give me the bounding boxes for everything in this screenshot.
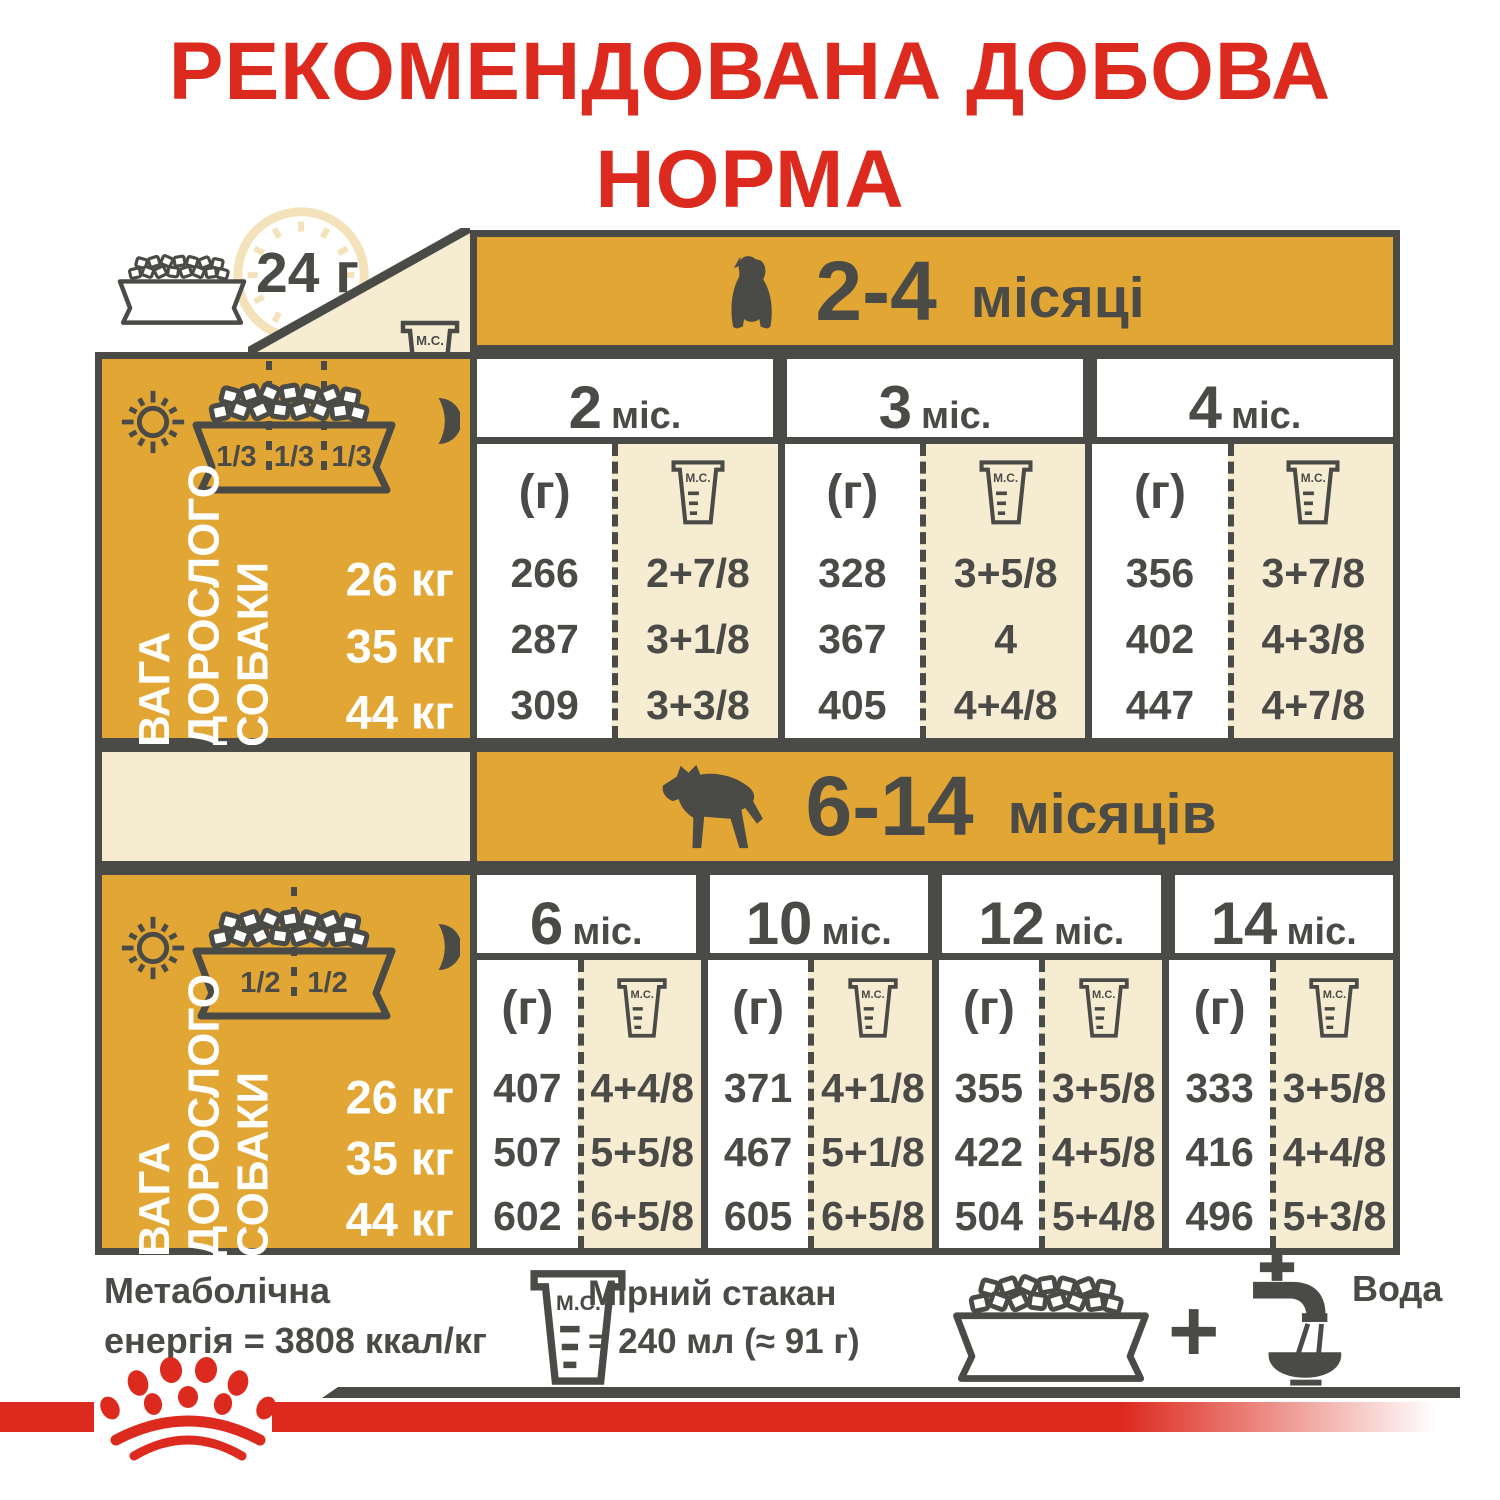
grams-value: 287 [477, 606, 612, 672]
weight-26: 26 кг [346, 552, 454, 607]
feeding-guide-page: РЕКОМЕНДОВАНА ДОБОВА НОРМА 24 г [0, 0, 1500, 1500]
grams-header: (г) [477, 444, 612, 540]
weight-44: 44 кг [346, 1192, 454, 1247]
grams-value: 507 [477, 1120, 578, 1184]
title-line-1: РЕКОМЕНДОВАНА ДОБОВА [0, 18, 1500, 126]
german-shepherd-icon [653, 762, 771, 852]
cups-value: 4+3/8 [1234, 606, 1393, 672]
grams-value: 328 [785, 540, 920, 606]
cups-value: 4+1/8 [814, 1056, 931, 1120]
cups-value: 6+5/8 [814, 1184, 931, 1248]
measuring-cup-icon: М.С. [615, 975, 669, 1041]
grams-header: (г) [477, 960, 578, 1056]
measuring-cup-icon: М.С. [846, 975, 900, 1041]
divider-line [322, 1387, 1460, 1398]
cups-value: 4+4/8 [1276, 1120, 1393, 1184]
month-header: 6 міс. [470, 868, 703, 960]
grams-value: 504 [939, 1184, 1040, 1248]
grams-value: 356 [1092, 540, 1227, 606]
grams-value: 367 [785, 606, 920, 672]
measuring-cup-icon: М.С. [1077, 975, 1131, 1041]
month-header: 14 міс. [1168, 868, 1401, 960]
cups-value: 4+5/8 [1045, 1120, 1162, 1184]
food-bowl-icon [935, 1256, 1167, 1391]
sidebar-6-14: 1/2 1/2 ВАГА ДОРОСЛОГО СОБАКИ 26 кг 35 к… [95, 868, 470, 1255]
grams-value: 496 [1169, 1184, 1270, 1248]
month-header: 12 міс. [935, 868, 1168, 960]
cups-value: 3+5/8 [1045, 1056, 1162, 1120]
month-header: 10 міс. [703, 868, 936, 960]
month-group: (г) 328 367 405 М.С. 3+5/8 4 4+4/8 [785, 444, 1093, 738]
cups-value: 3+5/8 [926, 540, 1085, 606]
section-range: 2-4 [815, 243, 936, 340]
weight-35: 35 кг [346, 619, 454, 674]
grams-value: 467 [708, 1120, 809, 1184]
section-range: 6-14 [805, 758, 973, 855]
weight-35: 35 кг [346, 1131, 454, 1186]
weight-44: 44 кг [346, 685, 454, 740]
cups-value: 4+4/8 [584, 1056, 701, 1120]
section-word: місяців [1008, 781, 1217, 847]
grams-value: 602 [477, 1184, 578, 1248]
water-tap-icon [1212, 1252, 1344, 1390]
cups-value: 4 [926, 606, 1085, 672]
divider-block [95, 745, 470, 868]
adult-weight-label: ВАГА ДОРОСЛОГО СОБАКИ [130, 987, 278, 1257]
month-group: (г) 266 287 309 М.С. 2+7/8 3+1/8 3+3/8 [477, 444, 785, 738]
cups-value: 5+4/8 [1045, 1184, 1162, 1248]
grams-value: 407 [477, 1056, 578, 1120]
cups-value: 6+5/8 [584, 1184, 701, 1248]
ration-table-6-14: (г) 407 507 602 М.С. 4+4/8 5+5/8 6+5/8 (… [470, 953, 1400, 1255]
grams-value: 266 [477, 540, 612, 606]
water-label: Вода [1352, 1268, 1442, 1310]
month-header-row-1: 2 міс. 3 міс. 4 міс. [470, 352, 1400, 444]
measuring-cup-icon: М.С. [1284, 457, 1342, 528]
month-header-row-2: 6 міс. 10 міс. 12 міс. 14 міс. [470, 868, 1400, 960]
grams-header: (г) [708, 960, 809, 1056]
ration-table-2-4: (г) 266 287 309 М.С. 2+7/8 3+1/8 3+3/8 (… [470, 437, 1400, 745]
cups-value: 3+3/8 [618, 672, 777, 738]
measuring-cup-note: Мірний стакан = 240 мл (≈ 91 г) [588, 1270, 860, 1367]
measuring-cup-icon: М.С. [977, 457, 1035, 528]
moon-icon [414, 919, 460, 975]
month-header: 3 міс. [780, 352, 1090, 444]
cups-value: 5+1/8 [814, 1120, 931, 1184]
month-header: 2 міс. [470, 352, 780, 444]
cups-value: 5+5/8 [584, 1120, 701, 1184]
cups-value: 3+5/8 [1276, 1056, 1393, 1120]
adult-weight-label: ВАГА ДОРОСЛОГО СОБАКИ [130, 463, 278, 747]
cups-value: 2+7/8 [618, 540, 777, 606]
royal-canin-crown-logo [86, 1356, 291, 1481]
grams-value: 416 [1169, 1120, 1270, 1184]
grams-value: 333 [1169, 1056, 1270, 1120]
measuring-cup-icon: М.С. [1307, 975, 1361, 1041]
month-group: (г) 407 507 602 М.С. 4+4/8 5+5/8 6+5/8 [477, 960, 708, 1248]
cups-value: 3+7/8 [1234, 540, 1393, 606]
cups-value: 4+7/8 [1234, 672, 1393, 738]
grams-value: 371 [708, 1056, 809, 1120]
sidebar-2-4: 1/3 1/3 1/3 ВАГА ДОРОСЛОГО СОБАКИ 26 кг … [95, 352, 470, 745]
section-2-4-header: 2-4 місяці [470, 230, 1400, 352]
grams-value: 402 [1092, 606, 1227, 672]
grams-header: (г) [1169, 960, 1270, 1056]
month-header: 4 міс. [1090, 352, 1400, 444]
grams-header: (г) [1092, 444, 1227, 540]
month-group: (г) 371 467 605 М.С. 4+1/8 5+1/8 6+5/8 [708, 960, 939, 1248]
month-group: (г) 355 422 504 М.С. 3+5/8 4+5/8 5+4/8 [939, 960, 1170, 1248]
cups-value: 4+4/8 [926, 672, 1085, 738]
cups-value: 3+1/8 [618, 606, 777, 672]
month-group: (г) 356 402 447 М.С. 3+7/8 4+3/8 4+7/8 [1092, 444, 1393, 738]
measuring-cup-icon: М.С. [669, 457, 727, 528]
food-bowl-icon [106, 242, 258, 331]
grams-value: 405 [785, 672, 920, 738]
moon-icon [414, 393, 460, 449]
grams-value: 309 [477, 672, 612, 738]
cups-value: 5+3/8 [1276, 1184, 1393, 1248]
grams-value: 355 [939, 1056, 1040, 1120]
grams-header: (г) [785, 444, 920, 540]
weight-26: 26 кг [346, 1070, 454, 1125]
grams-value: 422 [939, 1120, 1040, 1184]
metabolic-energy-note: Метаболічна енергія = 3808 ккал/кг [104, 1266, 487, 1365]
month-group: (г) 333 416 496 М.С. 3+5/8 4+4/8 5+3/8 [1169, 960, 1393, 1248]
section-6-14-header: 6-14 місяців [470, 745, 1400, 868]
puppy-icon [725, 248, 781, 334]
grams-value: 447 [1092, 672, 1227, 738]
grams-value: 605 [708, 1184, 809, 1248]
grams-header: (г) [939, 960, 1040, 1056]
section-word: місяці [971, 265, 1145, 331]
